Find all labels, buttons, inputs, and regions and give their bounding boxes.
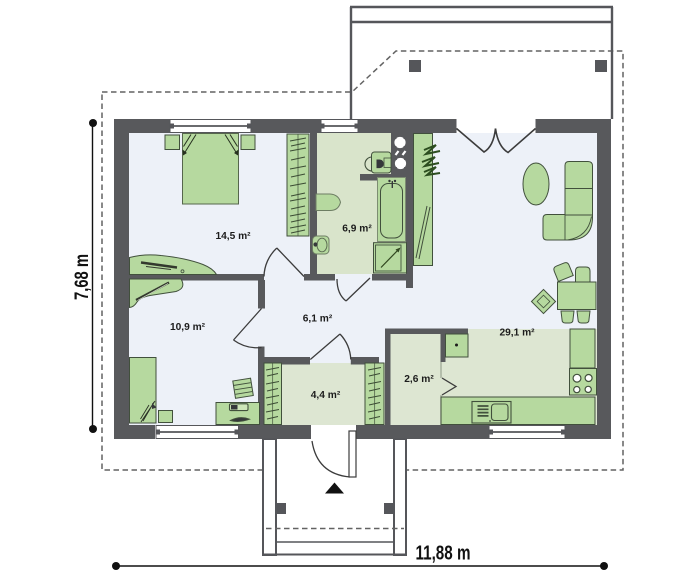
svg-text:6,9 m²: 6,9 m² bbox=[342, 224, 372, 235]
svg-text:6,1 m²: 6,1 m² bbox=[303, 314, 333, 325]
svg-text:2,6 m²: 2,6 m² bbox=[404, 374, 434, 385]
svg-text:29,1 m²: 29,1 m² bbox=[499, 328, 535, 339]
svg-text:4,4 m²: 4,4 m² bbox=[311, 390, 341, 401]
svg-text:10,9 m²: 10,9 m² bbox=[170, 322, 206, 333]
svg-text:11,88 m: 11,88 m bbox=[416, 543, 471, 565]
svg-text:14,5 m²: 14,5 m² bbox=[215, 231, 251, 242]
svg-text:7,68 m: 7,68 m bbox=[72, 254, 93, 300]
